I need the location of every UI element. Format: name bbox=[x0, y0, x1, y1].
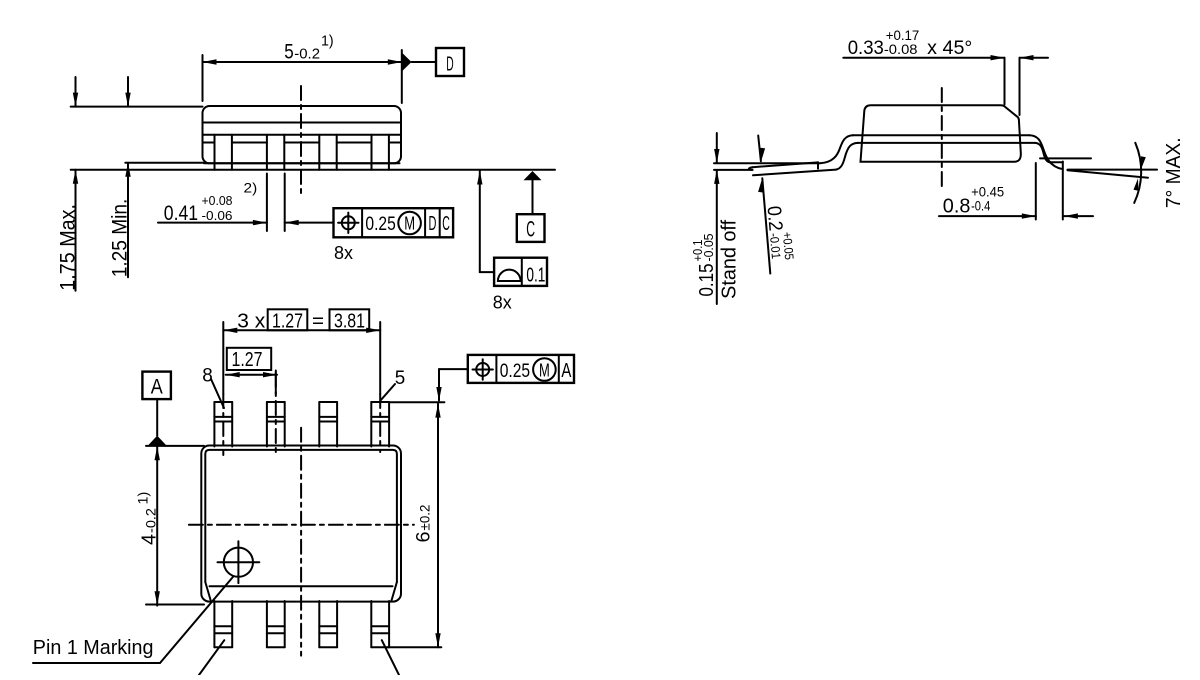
svg-text:7° MAX.: 7° MAX. bbox=[1162, 137, 1185, 208]
svg-text:A: A bbox=[151, 376, 163, 399]
svg-text:4: 4 bbox=[138, 534, 161, 545]
svg-text:8x: 8x bbox=[334, 243, 353, 263]
svg-text:0.2: 0.2 bbox=[763, 205, 787, 232]
svg-text:M: M bbox=[539, 359, 550, 380]
svg-text:-0.2: -0.2 bbox=[294, 47, 320, 63]
svg-text:1): 1) bbox=[135, 492, 151, 505]
svg-text:Pin 1 Marking: Pin 1 Marking bbox=[33, 637, 154, 659]
svg-text:5: 5 bbox=[284, 41, 294, 64]
svg-text:-0.01: -0.01 bbox=[767, 232, 783, 259]
svg-text:0.33: 0.33 bbox=[848, 37, 884, 59]
svg-text:1.25 Min.: 1.25 Min. bbox=[109, 199, 132, 278]
svg-text:8x: 8x bbox=[493, 293, 512, 313]
svg-text:2): 2) bbox=[244, 179, 258, 195]
svg-text:5: 5 bbox=[395, 368, 406, 389]
svg-text:6: 6 bbox=[413, 532, 435, 543]
svg-text:-0.2: -0.2 bbox=[143, 508, 159, 533]
svg-text:3 x: 3 x bbox=[237, 309, 266, 332]
svg-text:A: A bbox=[561, 359, 571, 382]
svg-text:1): 1) bbox=[321, 33, 334, 49]
svg-text:-0.08: -0.08 bbox=[884, 42, 918, 57]
svg-text:1.27: 1.27 bbox=[232, 348, 263, 371]
svg-text:C: C bbox=[526, 216, 535, 241]
svg-text:x 45°: x 45° bbox=[927, 37, 972, 59]
svg-text:Stand off: Stand off bbox=[718, 220, 741, 299]
svg-text:D: D bbox=[446, 53, 453, 75]
svg-text:0.25: 0.25 bbox=[365, 213, 396, 235]
svg-text:0.1: 0.1 bbox=[526, 264, 545, 287]
svg-text:+0.08: +0.08 bbox=[202, 194, 233, 208]
svg-text:1.27: 1.27 bbox=[272, 309, 303, 332]
svg-text:=: = bbox=[312, 309, 324, 332]
svg-text:1.75 Max.: 1.75 Max. bbox=[57, 204, 80, 291]
svg-text:+0.17: +0.17 bbox=[886, 28, 920, 43]
svg-text:±0.2: ±0.2 bbox=[418, 505, 433, 531]
svg-text:0.15: 0.15 bbox=[695, 264, 718, 297]
svg-text:C: C bbox=[442, 213, 450, 235]
svg-text:D: D bbox=[428, 213, 436, 235]
svg-text:-0.06: -0.06 bbox=[202, 209, 233, 223]
svg-text:3.81: 3.81 bbox=[334, 309, 365, 332]
svg-text:M: M bbox=[404, 213, 415, 234]
svg-text:0.25: 0.25 bbox=[500, 360, 531, 382]
svg-text:0.41: 0.41 bbox=[164, 202, 198, 225]
svg-text:-0.4: -0.4 bbox=[971, 199, 991, 214]
svg-text:-0.05: -0.05 bbox=[701, 234, 716, 262]
svg-text:0.8: 0.8 bbox=[943, 196, 971, 218]
svg-text:+0.45: +0.45 bbox=[971, 184, 1004, 199]
svg-text:8: 8 bbox=[202, 366, 213, 387]
